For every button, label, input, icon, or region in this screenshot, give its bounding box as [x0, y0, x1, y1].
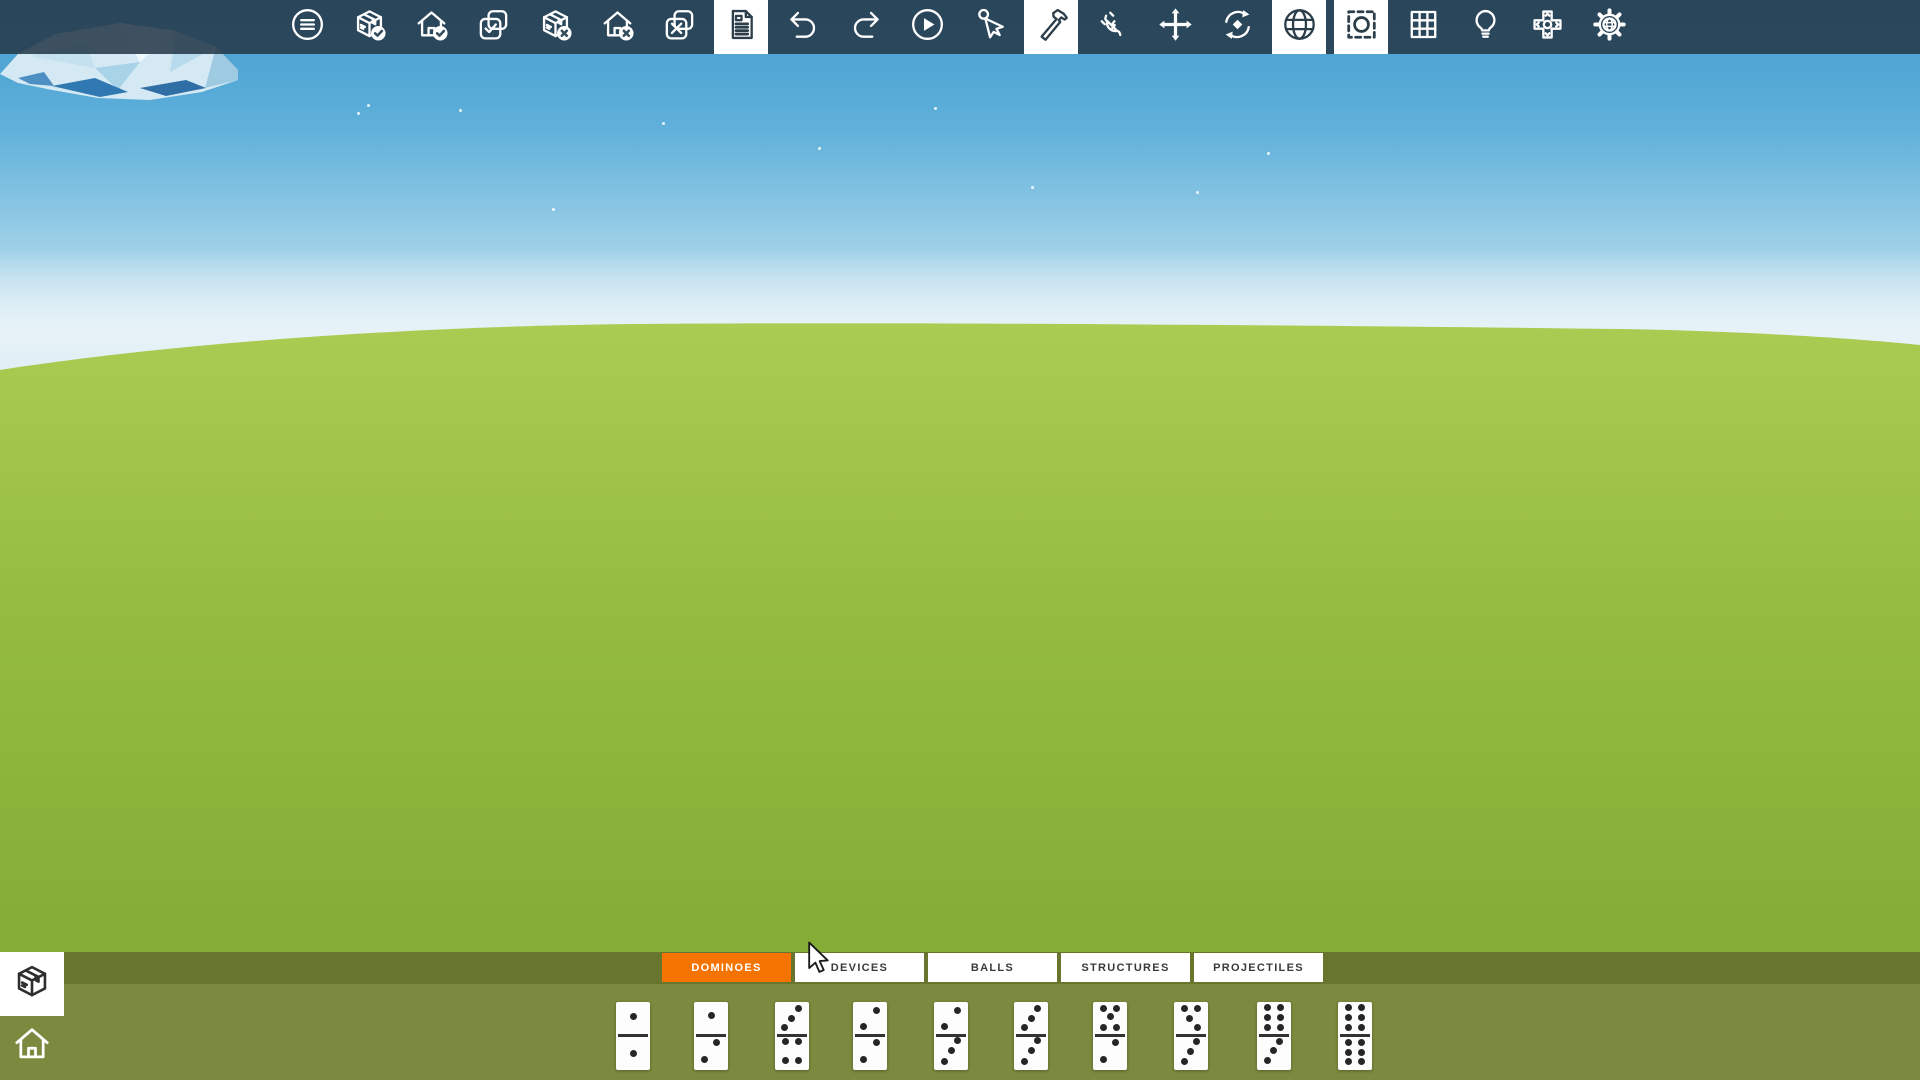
category-tabs: DOMINOESDEVICESBALLSSTRUCTURESPROJECTILE… — [662, 953, 1323, 982]
undo-icon — [785, 6, 822, 48]
grid-icon — [1405, 6, 1442, 48]
confirm-selection-icon — [475, 6, 512, 48]
save-box-button[interactable] — [342, 0, 396, 54]
menu-icon — [289, 6, 326, 48]
document-button[interactable] — [714, 0, 768, 54]
hammer-button[interactable] — [1024, 0, 1078, 54]
save-home-button[interactable] — [404, 0, 458, 54]
tab-structures[interactable]: STRUCTURES — [1061, 953, 1190, 982]
delete-box-button[interactable] — [528, 0, 582, 54]
focus-button[interactable] — [1334, 0, 1388, 54]
domino-list — [0, 1002, 1920, 1074]
home-button[interactable] — [6, 1020, 58, 1072]
domino-3-4[interactable] — [775, 1002, 809, 1070]
tab-balls[interactable]: BALLS — [928, 953, 1057, 982]
delete-box-icon — [537, 6, 574, 48]
world-settings-icon — [1591, 6, 1628, 48]
delete-home-button[interactable] — [590, 0, 644, 54]
delete-home-icon — [599, 6, 636, 48]
box-icon — [11, 961, 53, 1008]
inventory-box-button[interactable] — [0, 952, 64, 1016]
plug-button[interactable] — [1086, 0, 1140, 54]
pointer-button[interactable] — [962, 0, 1016, 54]
tab-projectiles[interactable]: PROJECTILES — [1194, 953, 1323, 982]
cancel-selection-icon — [661, 6, 698, 48]
globe-icon — [1281, 6, 1318, 48]
pointer-icon — [971, 6, 1008, 48]
save-box-icon — [351, 6, 388, 48]
tab-dominoes[interactable]: DOMINOES — [662, 953, 791, 982]
dpad-button[interactable] — [1520, 0, 1574, 54]
redo-button[interactable] — [838, 0, 892, 54]
plug-icon — [1095, 6, 1132, 48]
confirm-selection-button[interactable] — [466, 0, 520, 54]
bulb-button[interactable] — [1458, 0, 1512, 54]
menu-button[interactable] — [280, 0, 334, 54]
domino-1-2[interactable] — [694, 1002, 728, 1070]
undo-button[interactable] — [776, 0, 830, 54]
save-home-icon — [413, 6, 450, 48]
play-button[interactable] — [900, 0, 954, 54]
world-settings-button[interactable] — [1582, 0, 1636, 54]
domino-3-3[interactable] — [1014, 1002, 1048, 1070]
domino-1-1[interactable] — [616, 1002, 650, 1070]
toolbar — [0, 0, 1920, 54]
domino-4-3[interactable] — [1174, 1002, 1208, 1070]
viewport-3d[interactable] — [0, 0, 1920, 1080]
domino-6-6[interactable] — [1338, 1002, 1372, 1070]
hammer-icon — [1033, 6, 1070, 48]
bulb-icon — [1467, 6, 1504, 48]
move-icon — [1157, 6, 1194, 48]
domino-2-2[interactable] — [853, 1002, 887, 1070]
move-button[interactable] — [1148, 0, 1202, 54]
grid-button[interactable] — [1396, 0, 1450, 54]
globe-button[interactable] — [1272, 0, 1326, 54]
cancel-selection-button[interactable] — [652, 0, 706, 54]
domino-6-3[interactable] — [1257, 1002, 1291, 1070]
dpad-icon — [1529, 6, 1566, 48]
document-icon — [723, 6, 760, 48]
mouse-cursor — [807, 941, 833, 980]
focus-icon — [1343, 6, 1380, 48]
redo-icon — [847, 6, 884, 48]
play-icon — [909, 6, 946, 48]
domino-2-3[interactable] — [934, 1002, 968, 1070]
scene-graphic — [0, 0, 1920, 1080]
home-icon — [10, 1022, 54, 1071]
domino-5-2[interactable] — [1093, 1002, 1127, 1070]
rotate-button[interactable] — [1210, 0, 1264, 54]
rotate-icon — [1219, 6, 1256, 48]
